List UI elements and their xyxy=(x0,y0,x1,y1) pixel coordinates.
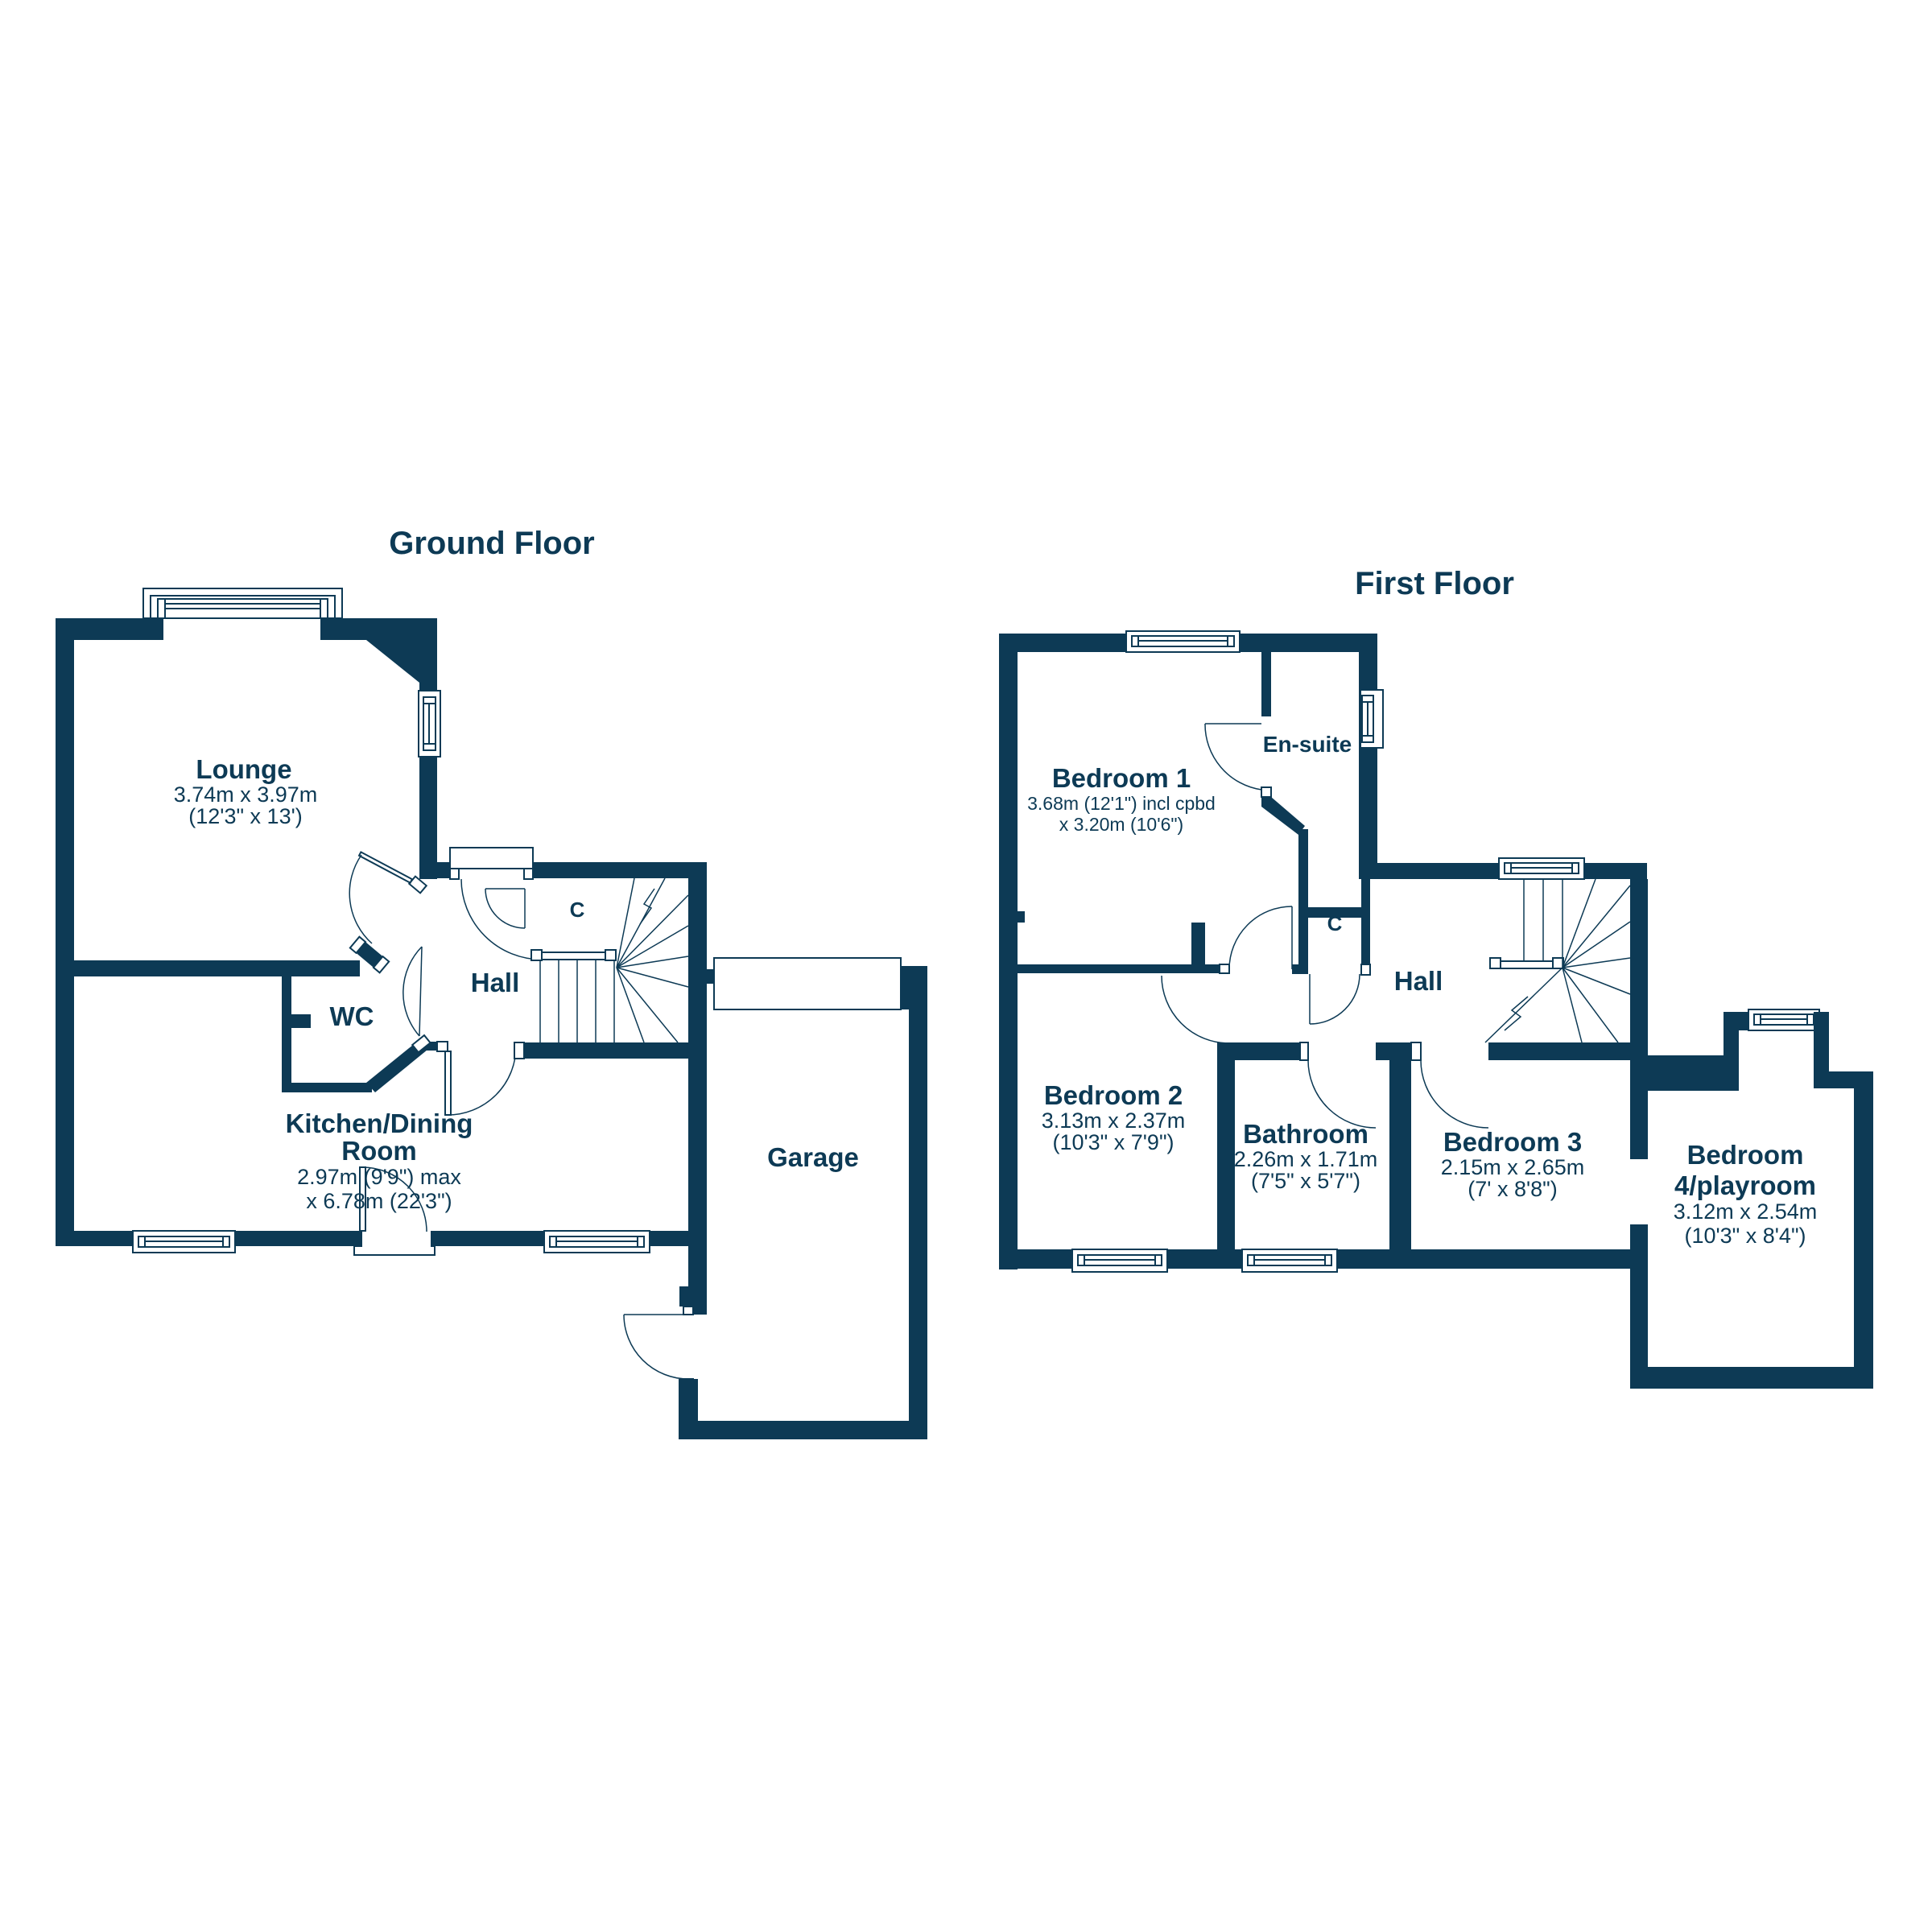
svg-text:(10'3" x 7'9"): (10'3" x 7'9") xyxy=(1052,1130,1174,1154)
svg-text:3.74m x 3.97m: 3.74m x 3.97m xyxy=(174,782,318,807)
svg-text:C: C xyxy=(1327,911,1343,935)
svg-text:Bedroom 2: Bedroom 2 xyxy=(1044,1080,1183,1110)
svg-text:3.68m (12'1") incl cpbd: 3.68m (12'1") incl cpbd xyxy=(1027,793,1216,814)
svg-text:2.15m x 2.65m: 2.15m x 2.65m xyxy=(1441,1155,1585,1179)
svg-text:(12'3" x 13'): (12'3" x 13') xyxy=(188,804,302,828)
svg-text:x 6.78m (22'3"): x 6.78m (22'3") xyxy=(306,1189,452,1213)
svg-text:Room: Room xyxy=(341,1136,417,1166)
svg-text:Hall: Hall xyxy=(471,968,520,997)
svg-text:WC: WC xyxy=(330,1001,374,1031)
svg-text:2.26m x 1.71m: 2.26m x 1.71m xyxy=(1234,1147,1378,1171)
svg-text:(10'3" x 8'4"): (10'3" x 8'4") xyxy=(1684,1224,1806,1248)
svg-text:3.12m x 2.54m: 3.12m x 2.54m xyxy=(1674,1199,1818,1224)
svg-text:(7'5" x 5'7"): (7'5" x 5'7") xyxy=(1251,1169,1360,1193)
svg-text:Bathroom: Bathroom xyxy=(1243,1119,1368,1149)
svg-text:Ground Floor: Ground Floor xyxy=(389,526,595,561)
svg-text:Hall: Hall xyxy=(1394,966,1443,996)
svg-text:Kitchen/Dining: Kitchen/Dining xyxy=(286,1108,473,1138)
svg-text:C: C xyxy=(570,898,585,922)
svg-text:3.13m x 2.37m: 3.13m x 2.37m xyxy=(1042,1108,1186,1133)
svg-text:Bedroom 3: Bedroom 3 xyxy=(1443,1127,1582,1157)
svg-text:Lounge: Lounge xyxy=(196,754,291,784)
svg-text:Garage: Garage xyxy=(767,1142,859,1172)
svg-text:Bedroom 1: Bedroom 1 xyxy=(1052,763,1191,793)
svg-text:Bedroom: Bedroom xyxy=(1687,1140,1804,1170)
svg-text:4/playroom: 4/playroom xyxy=(1674,1170,1816,1200)
svg-text:(7' x 8'8"): (7' x 8'8") xyxy=(1468,1177,1557,1201)
svg-text:First Floor: First Floor xyxy=(1355,566,1514,601)
svg-text:En-suite: En-suite xyxy=(1263,732,1352,757)
svg-text:x 3.20m (10'6"): x 3.20m (10'6") xyxy=(1059,814,1183,835)
svg-text:2.97m (9'9") max: 2.97m (9'9") max xyxy=(297,1165,461,1189)
